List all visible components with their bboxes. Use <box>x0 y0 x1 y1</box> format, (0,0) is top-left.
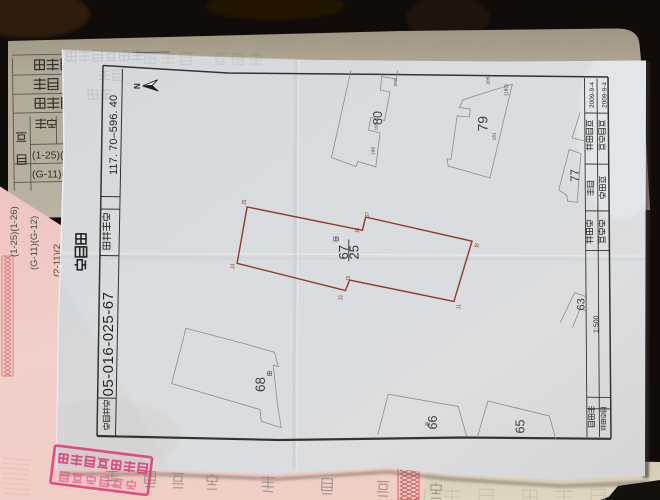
svg-text:J6: J6 <box>355 228 361 234</box>
svg-text:(182): (182) <box>504 84 510 96</box>
svg-text:77: 77 <box>570 169 582 182</box>
svg-text:205: 205 <box>486 76 492 84</box>
svg-text:(1-25)(1-26): (1-25)(1-26) <box>9 206 20 257</box>
svg-text:05-016-025-67: 05-016-025-67 <box>100 292 117 397</box>
svg-text:196: 196 <box>371 147 377 155</box>
svg-text:66: 66 <box>426 416 440 430</box>
svg-text:J5: J5 <box>242 200 248 206</box>
svg-text:199: 199 <box>374 122 380 130</box>
svg-text:N: N <box>133 83 142 89</box>
svg-text:65: 65 <box>514 420 528 434</box>
svg-text:181: 181 <box>492 132 498 140</box>
svg-text:200: 200 <box>393 78 399 86</box>
svg-text:J7: J7 <box>365 212 371 218</box>
svg-text:(G-11)(G-12): (G-11)(G-12) <box>29 216 40 270</box>
svg-text:J8: J8 <box>475 243 481 249</box>
svg-text:117. 70–596. 40: 117. 70–596. 40 <box>108 95 120 175</box>
svg-text:1:500: 1:500 <box>594 315 601 333</box>
svg-text:J3: J3 <box>339 295 345 301</box>
svg-text:2009-9-4: 2009-9-4 <box>589 82 596 108</box>
svg-text:J4: J4 <box>231 264 237 270</box>
svg-text:68: 68 <box>253 377 268 392</box>
svg-text:J1: J1 <box>457 304 463 310</box>
svg-text:79: 79 <box>475 116 491 132</box>
svg-text:J2: J2 <box>346 276 352 282</box>
svg-text:2009-9-4: 2009-9-4 <box>602 82 609 108</box>
